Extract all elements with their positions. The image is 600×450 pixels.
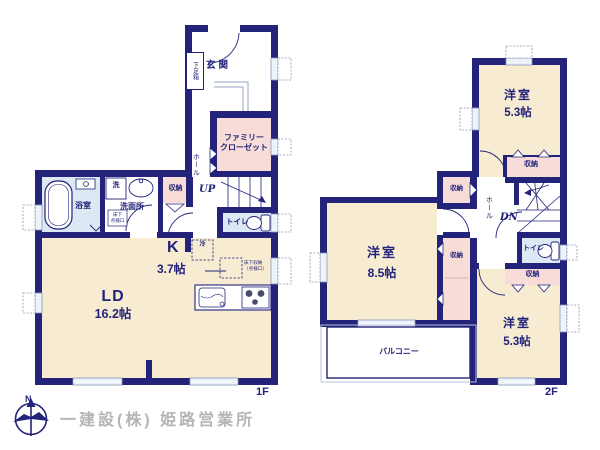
stairs-up-arrow (258, 196, 266, 203)
stairs-2f (517, 177, 560, 232)
hall1f-label: ホール (191, 153, 199, 177)
room2f-mid-size-label: 8.5帖 (357, 266, 407, 280)
family-closet-label: ファミリー (224, 133, 264, 142)
underfloor-storage-label: 床下収納 (244, 260, 262, 265)
fridge-label: 冷 (192, 242, 213, 249)
kitchen-label: K (167, 238, 179, 257)
washroom-label: 洗面所 (112, 202, 152, 212)
storage2f-mid-label: 収納 (443, 252, 470, 260)
toilet1f-icon (247, 215, 271, 231)
underfloor-storage-label2: （点検口） (244, 266, 267, 271)
floor2-label: 2F (545, 386, 558, 399)
floor1-label: 1F (256, 386, 269, 399)
plan-graphics (0, 0, 600, 450)
room2f-mid-floor (327, 203, 437, 320)
family-closet-label2: クローゼット (220, 143, 268, 152)
room2f-top-label: 洋室 (494, 88, 542, 102)
storage1f-door-mark (166, 204, 184, 212)
room2f-bottom-label: 洋室 (493, 316, 541, 330)
bath-counter-icon (76, 179, 95, 189)
stove-icon (242, 287, 269, 308)
kitchen-size-label: 3.7帖 (157, 262, 186, 276)
stairs-1f (221, 177, 266, 207)
shoe-box: 下足箱 (186, 52, 204, 90)
room2f-mid-door-arc (443, 209, 469, 235)
washer-label: 洗 (106, 182, 126, 190)
living-label: LD (90, 287, 136, 306)
storage2f-top-label: 収納 (507, 161, 555, 169)
kitchen-counter-icon (195, 285, 271, 310)
entrance-label: 玄関 (206, 60, 231, 71)
room2f-bottom-size-label: 5.3帖 (493, 336, 541, 350)
storage2f-mid-floor (443, 238, 470, 320)
storage2f-bottom-label: 収納 (505, 271, 560, 279)
living-size-label: 16.2帖 (84, 307, 142, 322)
bathtub-icon (45, 181, 72, 229)
entrance-step-lines (214, 82, 248, 111)
toilet2f-label: トイレ (523, 245, 544, 253)
bathroom-label: 浴室 (69, 201, 97, 211)
stairs-dn-label: DN (500, 212, 518, 224)
floor-hatch-label: 床下 (113, 212, 122, 217)
toilet1f-label: トイレ (226, 217, 249, 226)
shoe-box-label: 下足箱 (191, 62, 200, 80)
stairs-dn-arrow (524, 189, 531, 196)
stairs-up-label: UP (199, 184, 215, 196)
storage1f-label: 収納 (163, 185, 188, 193)
room2f-mid-label: 洋室 (357, 245, 407, 261)
entrance-door-arc (208, 33, 239, 63)
floor-hatch-label2: 点検口 (111, 218, 125, 223)
sink-icon (129, 179, 153, 197)
hall2f-label: ホール (484, 196, 492, 220)
balcony-label: バルコニー (368, 347, 430, 357)
compass-north-label: N (25, 394, 32, 405)
company-name: 一建設(株) 姫路営業所 (60, 406, 255, 430)
floor-plan: 玄関 下足箱 ファミリー クローゼット ホール UP 収納 浴室 洗 洗面所 床… (0, 0, 600, 450)
room2f-top-size-label: 5.3帖 (494, 107, 542, 121)
storage2f-small-label: 収納 (443, 185, 470, 193)
